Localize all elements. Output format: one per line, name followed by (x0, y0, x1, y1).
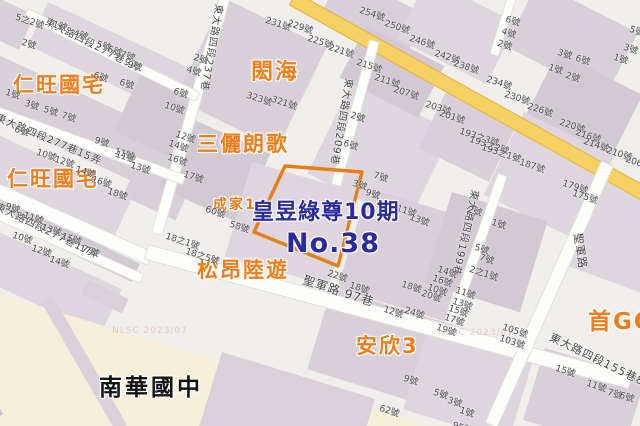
place-label: 三儷朗歌 (197, 128, 289, 158)
highlight-name-label: 皇昱綠尊10期 (252, 194, 400, 226)
place-label: 安欣3 (356, 330, 419, 360)
map-canvas[interactable]: 皇昱綠尊10期 No.38 NLSC 2023/07 NLSC 2023/07 … (0, 0, 640, 426)
highlight-number-label: No.38 (286, 228, 380, 259)
place-label: 仁旺國宅 (13, 69, 105, 99)
place-label: 首GO (588, 302, 640, 336)
watermark: NLSC 2023/07 (438, 328, 514, 338)
place-label: 南華國中 (99, 368, 203, 402)
place-label: 閎海 (251, 54, 299, 86)
watermark: NLSC 2023/07 (112, 326, 188, 336)
